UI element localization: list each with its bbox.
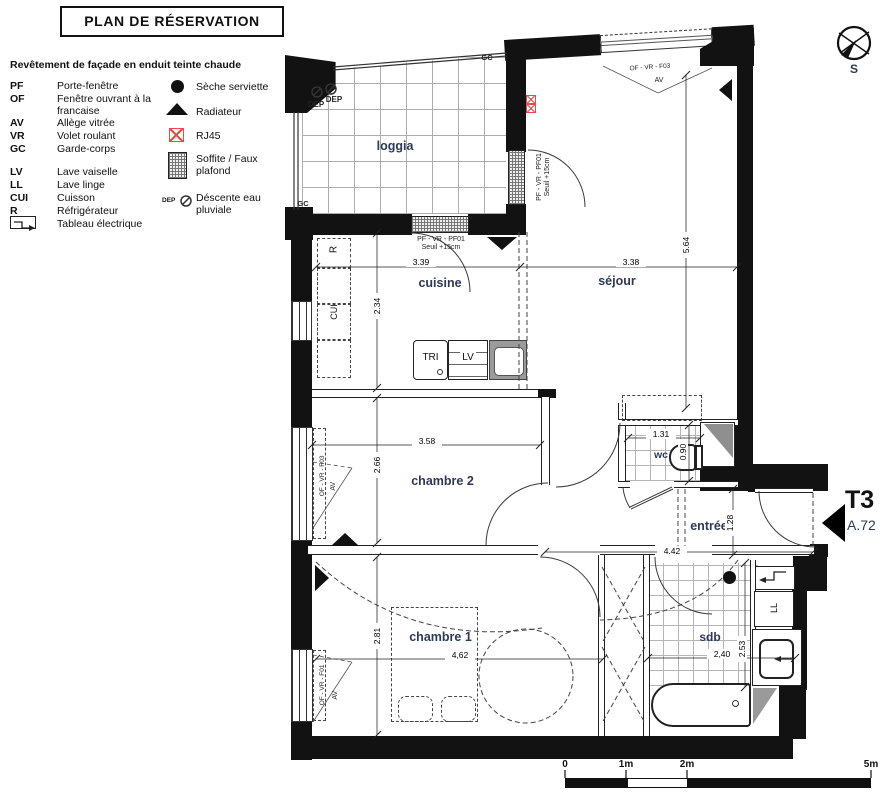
dim-chambre2-height: 2.66 xyxy=(372,452,382,478)
volet-roulant-cuisine-door xyxy=(411,216,469,233)
wall-segment xyxy=(506,204,526,235)
legend-label-av: Allège vitrée xyxy=(57,117,182,129)
lv-text: LV xyxy=(460,352,476,363)
kitchen-counter xyxy=(317,268,351,304)
wall-corridor-south xyxy=(712,545,814,555)
sdb-corner-gray xyxy=(753,688,777,724)
wall-placard-west xyxy=(598,555,605,736)
dim-sdb-height: 2.53 xyxy=(737,636,747,662)
chambre1-furniture xyxy=(398,696,433,722)
legend-label-rj45: RJ45 xyxy=(196,130,296,142)
legend-label-ll: Lave linge xyxy=(57,179,182,191)
label-gc-top: GC xyxy=(476,53,498,62)
wall-segment xyxy=(779,684,806,739)
unit-lot: A.72 xyxy=(847,517,890,533)
label-sejour-window: OF - VR - F03 xyxy=(608,61,692,75)
kitchen-sink-basin xyxy=(494,347,524,376)
legend-abbr-cui: CUI xyxy=(10,192,28,204)
radiateur-chambre1-icon xyxy=(315,565,329,591)
wall-segment xyxy=(733,420,753,467)
label-lv: LV xyxy=(448,352,488,363)
legend-label-of: Fenêtre ouvrant à la francaise xyxy=(57,93,167,118)
label-chambre1-window-av: AV xyxy=(332,682,340,708)
window-sejour-north xyxy=(600,28,713,53)
room-label-wc: wc xyxy=(648,449,674,461)
dim-entree-width: 4.42 xyxy=(657,546,687,556)
dim-chambre1-height: 2.81 xyxy=(372,623,382,649)
wall-segment xyxy=(291,540,312,650)
dim-cuisine-height: 2.34 xyxy=(372,293,382,319)
kitchen-counter xyxy=(317,340,351,378)
legend-abbr-av: AV xyxy=(10,117,24,129)
label-loggia-door: PF - VR - PF01 Seuil +15cm xyxy=(536,147,552,207)
dim-sejour-height: 5.64 xyxy=(681,232,691,258)
label-refrigerateur: R xyxy=(329,241,340,259)
tri-drain-dot xyxy=(437,369,443,375)
compass-icon xyxy=(838,27,870,59)
wall-segment xyxy=(737,58,753,468)
label-cuisine-door: PF - VR - PF01 Seuil +15cm xyxy=(407,236,475,253)
door-code: PF - VR - PF01 xyxy=(536,147,544,207)
legend-abbr-ll: LL xyxy=(10,179,23,191)
wall-wc-south xyxy=(674,481,738,488)
washbasin-bowl xyxy=(759,639,794,679)
legend-label-descente-eau: Déscente eau pluviale xyxy=(196,192,284,217)
label-gc-left: GC xyxy=(292,199,314,208)
wall-segment xyxy=(504,34,601,61)
wall-wc-south xyxy=(618,481,630,488)
dim-entree-height: 1.28 xyxy=(725,510,735,536)
wall-chambre2-east xyxy=(541,397,550,485)
legend-dep-text: DEP xyxy=(162,197,175,204)
scale-label-5m: 5m xyxy=(862,759,880,770)
room-label-sdb: sdb xyxy=(694,630,726,644)
compass-south-label: S xyxy=(846,62,862,76)
chambre1-furniture xyxy=(441,696,476,722)
room-label-chambre2: chambre 2 xyxy=(395,474,490,488)
legend-abbr-pf: PF xyxy=(10,80,23,92)
wall-segment xyxy=(291,340,312,428)
label-cuisson: CUI xyxy=(329,300,339,324)
label-lave-linge: LL xyxy=(769,595,779,621)
radiateur-icon xyxy=(166,103,188,115)
legend-abbr-r: R xyxy=(10,205,18,217)
radiateur-chambre2-icon xyxy=(331,533,359,546)
dim-sejour-width: 3.38 xyxy=(616,257,646,267)
wall-segment xyxy=(285,214,412,235)
legend-label-pf: Porte-fenêtre xyxy=(57,80,182,92)
legend-abbr-lv: LV xyxy=(10,166,23,178)
room-label-sejour: séjour xyxy=(585,274,649,288)
dim-chambre1-width: 4,62 xyxy=(445,650,475,660)
tableau-electrique-unit xyxy=(755,566,795,590)
scale-seg-white xyxy=(627,779,688,787)
dim-sdb-width: 2,40 xyxy=(707,649,737,659)
legend-abbr-gc: GC xyxy=(10,143,26,155)
label-chambre2-window-av: AV xyxy=(330,473,338,499)
door-seuil: Seuil +15cm xyxy=(544,147,552,207)
legend-label-lv: Lave vaiselle xyxy=(57,166,182,178)
dim-cuisine-width: 3.39 xyxy=(406,257,436,267)
wall-placard-east xyxy=(643,555,650,736)
door-seuil: Seuil +15cm xyxy=(407,244,475,252)
wall-segment xyxy=(506,48,526,152)
toilet-cistern xyxy=(695,445,703,470)
label-dep-2: DEP xyxy=(321,95,347,104)
wall-segment xyxy=(793,556,827,591)
unit-entry-arrow-icon xyxy=(822,504,845,542)
room-label-cuisine: cuisine xyxy=(408,276,472,290)
floor-plan-page: { "title": "PLAN DE RÉSERVATION", "legen… xyxy=(0,0,890,800)
room-label-chambre1: chambre 1 xyxy=(393,630,488,644)
seche-serviette-sdb-icon xyxy=(723,571,736,584)
legend-label-vr: Volet roulant xyxy=(57,130,182,142)
tableau-electrique-icon xyxy=(10,216,36,229)
legend-intro: Revêtement de façade en enduit teinte ch… xyxy=(10,59,300,71)
scale-label-1m: 1m xyxy=(617,759,635,770)
wall-segment xyxy=(291,736,793,759)
legend-abbr-vr: VR xyxy=(10,130,25,142)
title-box: PLAN DE RÉSERVATION xyxy=(60,6,284,37)
scale-bar-ticks xyxy=(565,770,871,778)
legend-label-seche-serviette: Sèche serviette xyxy=(196,81,296,93)
window-cuisine-west xyxy=(291,301,312,341)
scale-seg-black xyxy=(566,779,627,787)
sdb-floor-tiles xyxy=(648,563,758,686)
scale-bar xyxy=(565,778,871,788)
room-label-loggia: loggia xyxy=(365,139,425,153)
legend-label-tableau: Tableau électrique xyxy=(57,218,192,230)
scale-label-2m: 2m xyxy=(678,759,696,770)
radiateur-cuisine-icon xyxy=(487,237,517,250)
scale-seg-black xyxy=(688,779,870,787)
radiateur-sejour-icon xyxy=(719,79,732,101)
legend-label-r: Réfrigérateur xyxy=(57,205,182,217)
wall-corridor-south xyxy=(600,545,655,555)
wall-corridor-south xyxy=(308,545,538,555)
volet-roulant-loggia-door xyxy=(508,150,525,205)
legend-abbr-of: OF xyxy=(10,93,25,105)
door-code: PF - VR - PF01 xyxy=(407,236,475,244)
window-chambre1-west xyxy=(291,649,313,722)
wc-duct-niche xyxy=(700,422,735,467)
legend-label-soffite: Soffite / Faux plafond xyxy=(196,153,276,178)
label-chambre2-window: OF - VR - F03 xyxy=(319,445,327,507)
dim-wc-width: 1.31 xyxy=(646,429,676,439)
page-title: PLAN DE RÉSERVATION xyxy=(84,13,260,29)
label-tri: TRI xyxy=(413,352,448,363)
wall-segment xyxy=(291,235,312,303)
rj45-plan-icon xyxy=(526,95,536,104)
unit-type: T3 xyxy=(845,486,890,515)
entrance-door-lintel xyxy=(755,488,813,493)
label-chambre1-window: OF - VR - F01 xyxy=(319,654,327,716)
legend-label-gc: Garde-corps xyxy=(57,143,182,155)
soffite-wc-zone xyxy=(622,395,702,421)
bathtub-drain xyxy=(732,700,739,707)
wall-cuisine-chambre2 xyxy=(312,389,538,398)
dim-wc-height: 0.90 xyxy=(678,439,688,465)
dim-chambre2-width: 3.58 xyxy=(412,436,442,446)
rj45-plan-icon xyxy=(526,104,536,113)
legend-label-radiateur: Radiateur xyxy=(196,106,296,118)
scale-label-0: 0 xyxy=(558,759,572,770)
window-chambre2-west xyxy=(291,427,313,541)
label-sejour-window-av: AV xyxy=(649,77,669,85)
